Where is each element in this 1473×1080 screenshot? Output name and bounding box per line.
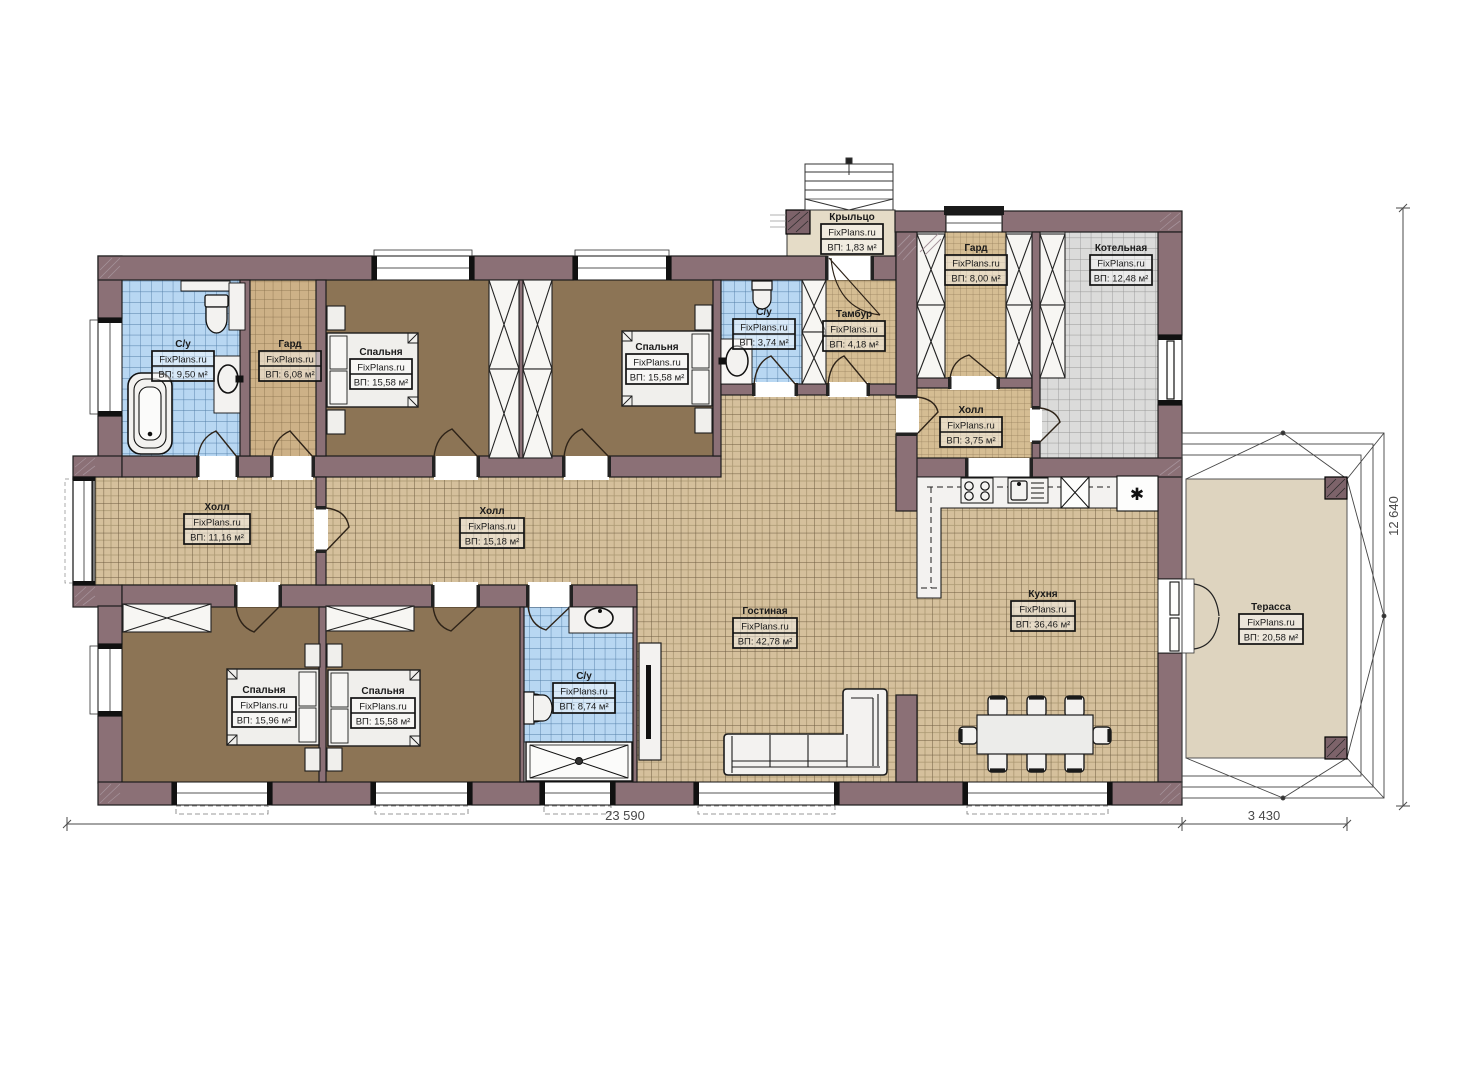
svg-text:Холл: Холл: [204, 502, 229, 513]
svg-text:ВП: 15,58 м²: ВП: 15,58 м²: [356, 717, 411, 728]
svg-text:FixPlans.ru: FixPlans.ru: [830, 325, 878, 336]
svg-text:Котельная: Котельная: [1095, 243, 1148, 254]
svg-text:FixPlans.ru: FixPlans.ru: [468, 522, 516, 533]
svg-text:Спальня: Спальня: [361, 686, 404, 697]
svg-text:ВП: 11,16 м²: ВП: 11,16 м²: [190, 533, 244, 544]
svg-text:FixPlans.ru: FixPlans.ru: [560, 687, 608, 698]
svg-text:Холл: Холл: [479, 506, 504, 517]
svg-text:FixPlans.ru: FixPlans.ru: [952, 259, 1000, 270]
svg-text:ВП: 1,83 м²: ВП: 1,83 м²: [827, 243, 876, 254]
svg-text:FixPlans.ru: FixPlans.ru: [1097, 259, 1145, 270]
svg-text:Терасса: Терасса: [1251, 602, 1291, 613]
svg-text:FixPlans.ru: FixPlans.ru: [159, 355, 207, 366]
svg-text:FixPlans.ru: FixPlans.ru: [357, 363, 405, 374]
svg-text:ВП: 12,48 м²: ВП: 12,48 м²: [1094, 274, 1149, 285]
svg-text:ВП: 15,58 м²: ВП: 15,58 м²: [354, 378, 409, 389]
svg-text:ВП: 8,74 м²: ВП: 8,74 м²: [559, 702, 608, 713]
svg-text:ВП: 3,74 м²: ВП: 3,74 м²: [739, 338, 788, 349]
svg-text:Спальня: Спальня: [359, 347, 402, 358]
svg-text:Кухня: Кухня: [1028, 589, 1057, 600]
svg-text:ВП: 42,78 м²: ВП: 42,78 м²: [738, 637, 793, 648]
svg-text:✱: ✱: [1130, 485, 1144, 504]
svg-text:Гостиная: Гостиная: [742, 606, 787, 617]
svg-text:Спальня: Спальня: [242, 685, 285, 696]
svg-text:ВП: 20,58 м²: ВП: 20,58 м²: [1244, 633, 1299, 644]
svg-text:ВП: 9,50 м²: ВП: 9,50 м²: [158, 370, 207, 381]
svg-text:FixPlans.ru: FixPlans.ru: [359, 702, 407, 713]
svg-text:FixPlans.ru: FixPlans.ru: [1019, 605, 1067, 616]
svg-text:Гард: Гард: [278, 339, 302, 350]
svg-text:FixPlans.ru: FixPlans.ru: [193, 518, 241, 529]
svg-text:Гард: Гард: [964, 243, 988, 254]
svg-text:ВП: 15,96 м²: ВП: 15,96 м²: [237, 716, 292, 727]
svg-text:ВП: 4,18 м²: ВП: 4,18 м²: [829, 340, 878, 351]
svg-text:ВП: 15,18 м²: ВП: 15,18 м²: [465, 537, 520, 548]
svg-text:FixPlans.ru: FixPlans.ru: [740, 323, 788, 334]
svg-text:FixPlans.ru: FixPlans.ru: [947, 421, 995, 432]
svg-text:FixPlans.ru: FixPlans.ru: [266, 355, 314, 366]
svg-text:3 430: 3 430: [1248, 808, 1281, 823]
svg-text:ВП: 8,00 м²: ВП: 8,00 м²: [951, 274, 1000, 285]
svg-text:Холл: Холл: [958, 405, 983, 416]
svg-text:Тамбур: Тамбур: [836, 308, 872, 320]
svg-text:ВП: 36,46 м²: ВП: 36,46 м²: [1016, 620, 1071, 631]
svg-text:ВП: 6,08 м²: ВП: 6,08 м²: [265, 370, 314, 381]
svg-text:23 590: 23 590: [605, 808, 645, 823]
svg-text:FixPlans.ru: FixPlans.ru: [240, 701, 288, 712]
svg-text:12 640: 12 640: [1386, 496, 1401, 536]
svg-text:С/у: С/у: [175, 339, 191, 350]
svg-text:С/у: С/у: [756, 307, 772, 318]
svg-text:FixPlans.ru: FixPlans.ru: [633, 358, 681, 369]
svg-text:Спальня: Спальня: [635, 342, 678, 353]
svg-text:FixPlans.ru: FixPlans.ru: [1247, 618, 1295, 629]
svg-text:Крыльцо: Крыльцо: [829, 212, 875, 223]
svg-text:FixPlans.ru: FixPlans.ru: [741, 622, 789, 633]
svg-text:FixPlans.ru: FixPlans.ru: [828, 228, 876, 239]
svg-text:ВП: 3,75 м²: ВП: 3,75 м²: [946, 436, 995, 447]
svg-text:ВП: 15,58 м²: ВП: 15,58 м²: [630, 373, 685, 384]
svg-text:С/у: С/у: [576, 671, 592, 682]
